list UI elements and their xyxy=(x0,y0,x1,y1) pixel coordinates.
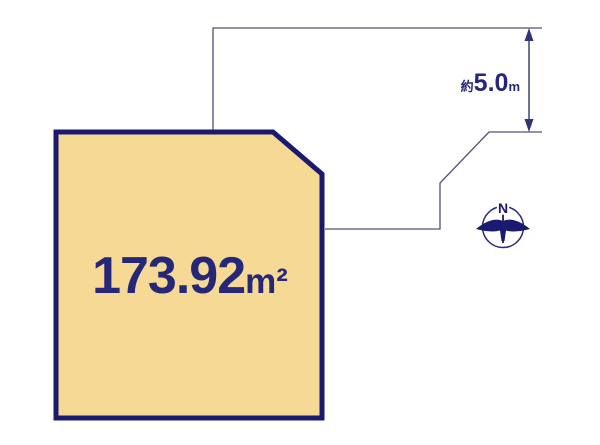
plot-area-label: 173.92m² xyxy=(56,250,324,302)
dimension-label: 約5.0m xyxy=(420,71,520,96)
dimension-prefix: 約 xyxy=(461,79,474,94)
compass-north-label: N xyxy=(498,200,508,216)
dimension-arrow-head-top xyxy=(525,28,534,41)
dimension-unit: m xyxy=(508,79,520,94)
plot-area-value: 173.92 xyxy=(92,247,245,305)
road-outline-lower xyxy=(325,132,542,229)
compass-wings xyxy=(476,220,530,241)
land-plot-diagram: N 173.92m² 約5.0m xyxy=(0,0,600,445)
dimension-value: 5.0 xyxy=(474,69,509,97)
dimension-arrow xyxy=(525,28,534,132)
dimension-arrow-head-bottom xyxy=(525,119,534,132)
plot-area-unit: m² xyxy=(245,262,288,301)
compass-icon: N xyxy=(476,200,530,248)
diagram-drawing: N xyxy=(0,0,600,445)
